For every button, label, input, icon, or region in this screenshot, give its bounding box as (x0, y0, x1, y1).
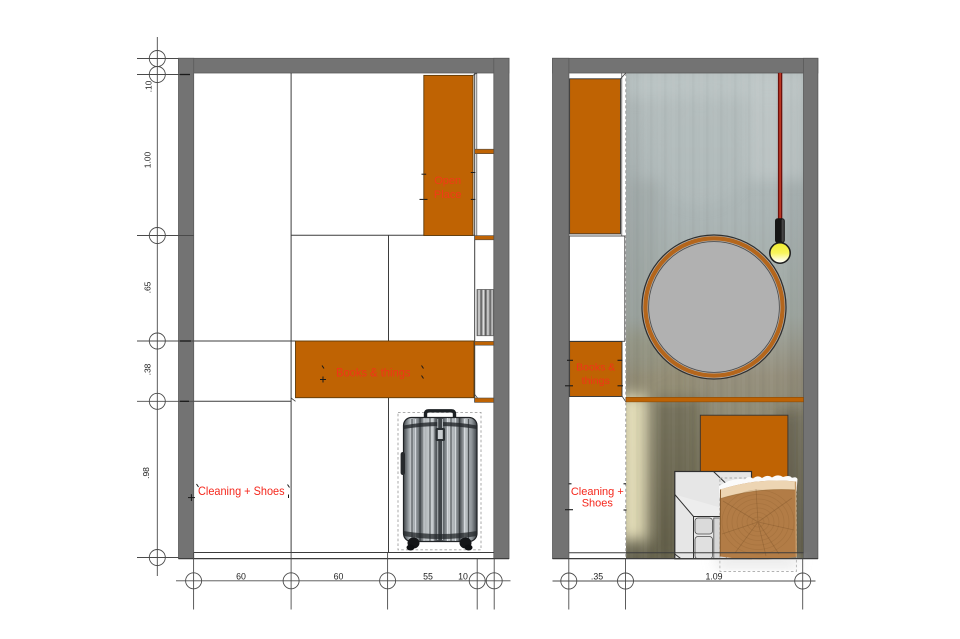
svg-text:1.09: 1.09 (705, 571, 722, 581)
svg-text:.98: .98 (141, 467, 151, 479)
svg-text:Open: Open (434, 175, 461, 187)
svg-text:.38: .38 (143, 363, 153, 375)
svg-text:.10: .10 (144, 80, 154, 92)
svg-text:10: 10 (458, 571, 468, 581)
svg-text:1.00: 1.00 (143, 151, 153, 168)
svg-text:60: 60 (236, 571, 246, 581)
svg-text:Books & things: Books & things (336, 365, 411, 379)
svg-text:60: 60 (334, 571, 344, 581)
svg-text:Place: Place (434, 189, 462, 201)
svg-text:Cleaning +: Cleaning + (571, 486, 624, 498)
svg-text:Cleaning + Shoes: Cleaning + Shoes (198, 484, 285, 498)
svg-text:Shoes: Shoes (582, 498, 614, 510)
svg-text:55: 55 (423, 571, 433, 581)
svg-text:Books &: Books & (576, 362, 615, 374)
svg-text:.35: .35 (591, 571, 603, 581)
svg-text:.65: .65 (143, 281, 153, 293)
svg-text:things: things (582, 375, 610, 387)
